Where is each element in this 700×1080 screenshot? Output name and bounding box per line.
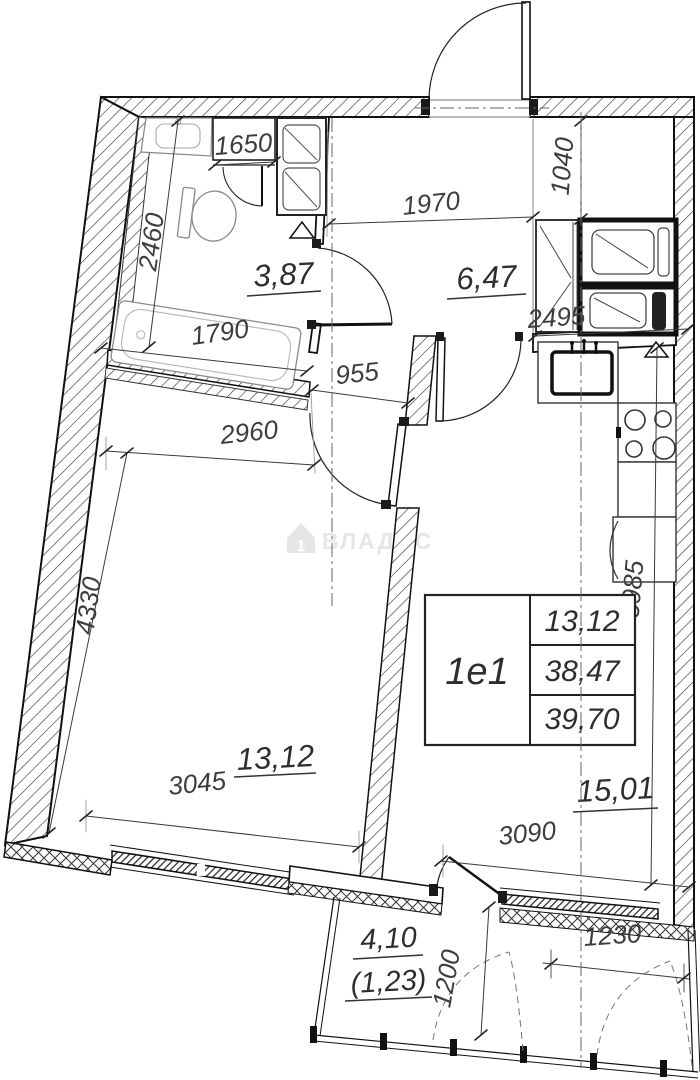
bedroom-area-label: 13,12 <box>236 738 315 777</box>
unit-info-table: 1e1 13,12 38,47 39,70 <box>425 595 635 745</box>
kitchen-area-label: 15,01 <box>576 770 655 809</box>
dim-label-955: 955 <box>334 356 381 390</box>
dim-label-3090: 3090 <box>497 815 558 851</box>
top-wall-left <box>101 97 429 117</box>
hallway-area-label: 6,47 <box>455 258 519 296</box>
floor-plan-drawing: 1 ВЛАДИС <box>0 0 700 1080</box>
floor-plan-page: 1 ВЛАДИС <box>0 0 700 1080</box>
unit-area-no-balcony: 38,47 <box>544 655 620 688</box>
dim-label-1230: 1230 <box>582 918 642 952</box>
watermark-house-number: 1 <box>297 538 306 555</box>
unit-living-area: 13,12 <box>544 605 619 638</box>
kitchen-counter <box>618 462 676 517</box>
dim-label-1040: 1040 <box>545 136 580 197</box>
kitchen-door-leaf <box>436 338 445 421</box>
dim-label-3045: 3045 <box>167 765 228 801</box>
wardrobe-dark-panel <box>652 292 666 330</box>
balcony-reduced-area-label: (1,23) <box>350 964 427 1000</box>
vanity-basin <box>156 124 200 148</box>
kitchen-sink-icon <box>552 352 612 394</box>
unit-id-label: 1e1 <box>445 651 508 693</box>
entrance-door-leaf <box>522 2 530 99</box>
dim-label-1650: 1650 <box>213 127 273 161</box>
balcony-area-label: 4,10 <box>360 922 418 957</box>
bedroom-window-mullion <box>197 864 205 876</box>
bathroom-area-label: 3,87 <box>252 255 316 293</box>
unit-total-area: 39,70 <box>544 703 619 736</box>
bathroom-door-leaf <box>313 324 392 325</box>
bathroom-cabinet-icon <box>277 118 326 215</box>
dim-label-2960: 2960 <box>218 414 280 450</box>
dim-label-2495: 2495 <box>525 300 586 334</box>
dim-label-1970: 1970 <box>401 185 462 221</box>
top-wall-right <box>530 97 694 117</box>
